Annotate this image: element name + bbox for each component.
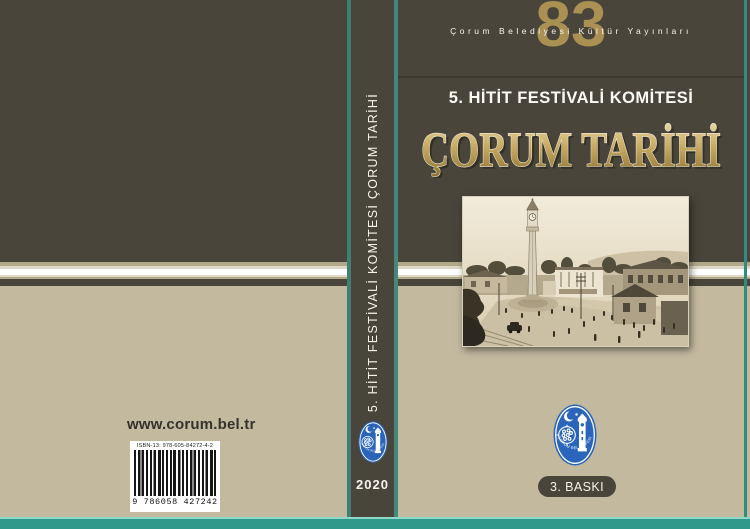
isbn-text: ISBN-13: 978-605-84272-4-2 — [130, 443, 220, 449]
book-cover-spread: www.corum.bel.tr ISBN-13: 978-605-84272-… — [0, 0, 750, 529]
book-title: ÇORUM TARİHİ ÇORUM TARİHİ — [398, 108, 744, 178]
spine-year: 2020 — [351, 477, 394, 492]
front-cover: 83 Çorum Belediyesi Kültür Yayınları 5. … — [398, 0, 744, 517]
barcode-bars — [134, 450, 216, 496]
spine-title: 5. HİTİT FESTİVALİ KOMİTESİ ÇORUM TARİHİ — [366, 93, 380, 412]
website-url: www.corum.bel.tr — [127, 416, 256, 433]
barcode-digits: 9 786058 427242 — [130, 497, 220, 507]
spine: 5. HİTİT FESTİVALİ KOMİTESİ ÇORUM TARİHİ — [347, 0, 398, 517]
book-title-text: ÇORUM TARİHİ — [421, 121, 721, 177]
edition-badge: 3. BASKI — [538, 476, 616, 497]
clock-tower-photo-art — [463, 197, 688, 346]
clock-tower-photo — [462, 196, 689, 347]
right-edge-line — [744, 0, 747, 517]
spine-title-wrap: 5. HİTİT FESTİVALİ KOMİTESİ ÇORUM TARİHİ — [351, 88, 394, 418]
municipality-logo-small: ÇORUM BELEDİYESİ — [358, 421, 388, 463]
committee-subtitle: 5. HİTİT FESTİVALİ KOMİTESİ — [403, 88, 739, 108]
barcode-box: ISBN-13: 978-605-84272-4-2 9 786058 4272… — [130, 441, 220, 512]
municipality-logo: ÇORUM BELEDİYESİ — [553, 404, 597, 466]
band-divider — [398, 76, 744, 78]
publisher-line: Çorum Belediyesi Kültür Yayınları — [398, 26, 744, 36]
bottom-edge-band — [0, 517, 750, 529]
